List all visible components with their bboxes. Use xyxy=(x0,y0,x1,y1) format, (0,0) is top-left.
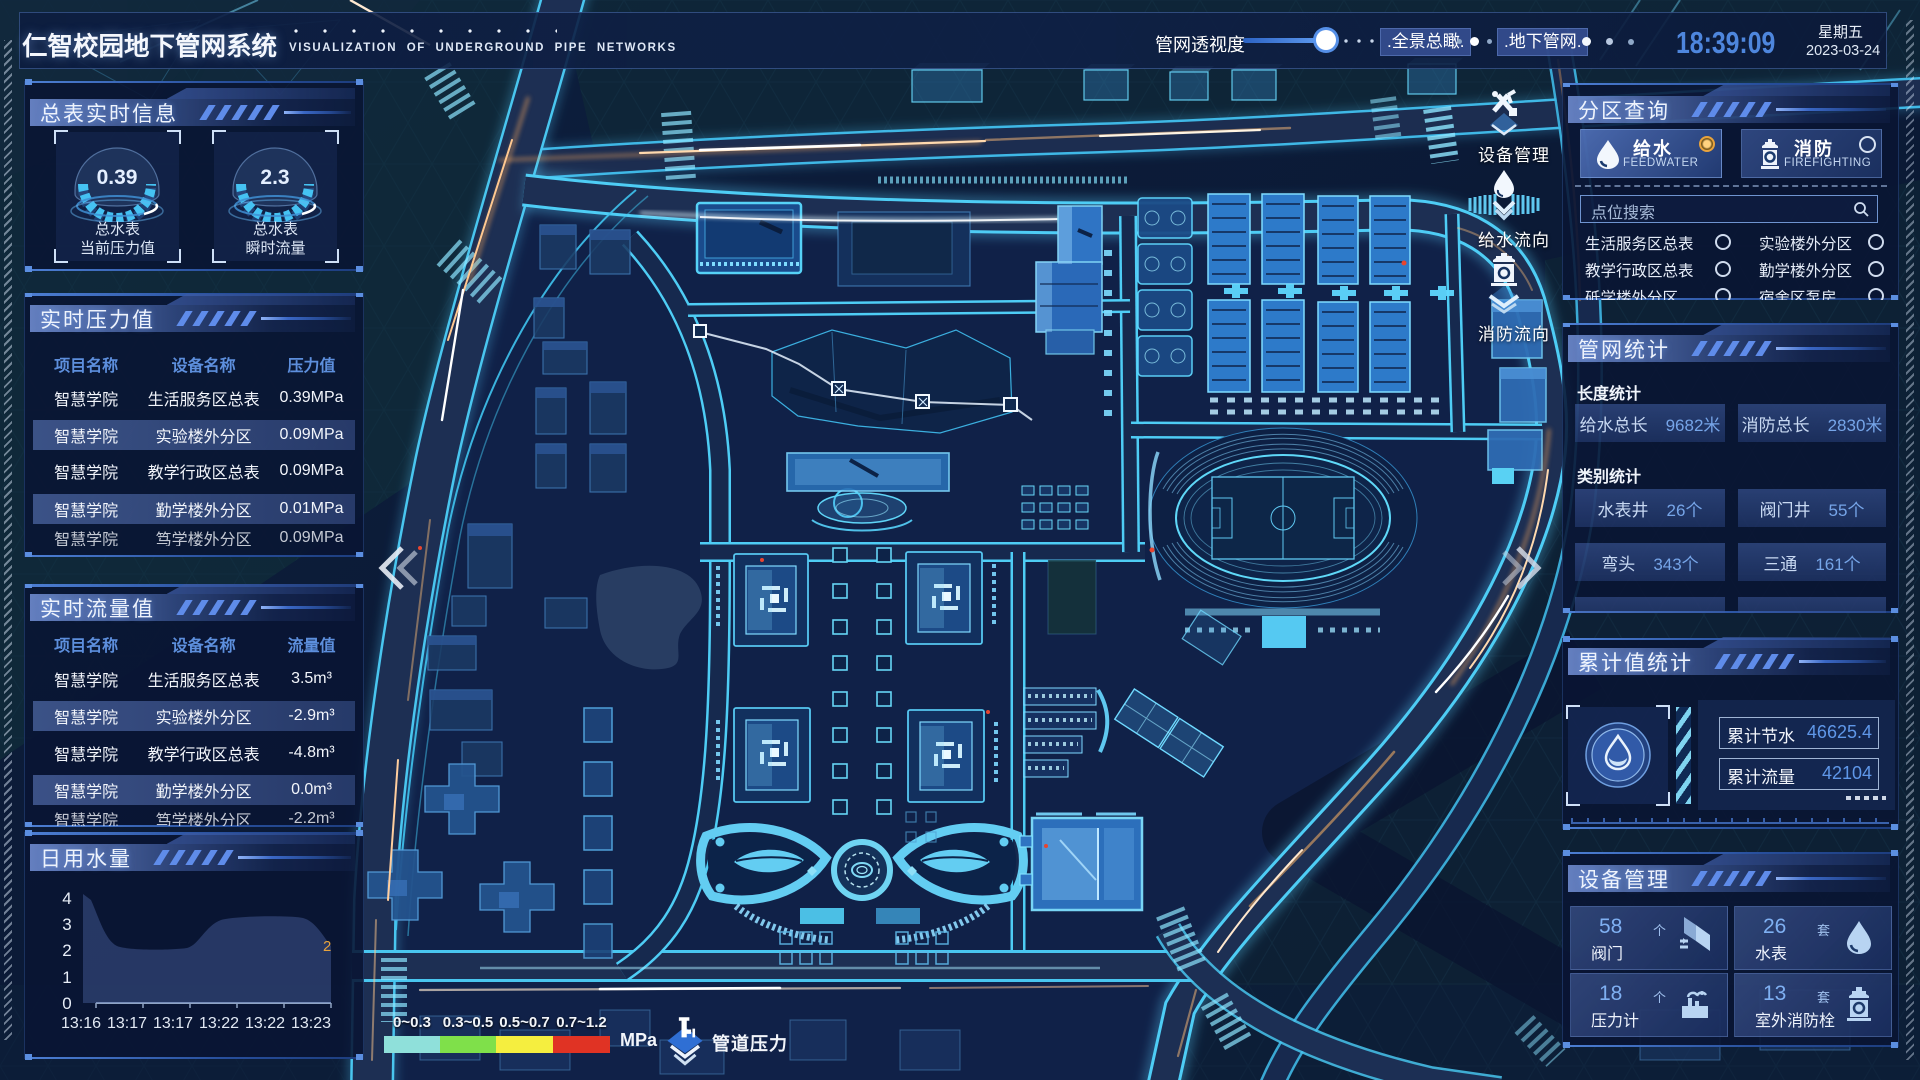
svg-text:13:17: 13:17 xyxy=(153,1015,193,1032)
svg-text:1: 1 xyxy=(62,968,71,987)
svg-text:13:23: 13:23 xyxy=(291,1015,331,1032)
svg-text:0: 0 xyxy=(62,994,71,1013)
svg-text:2: 2 xyxy=(323,938,331,955)
svg-text:3: 3 xyxy=(62,915,71,934)
svg-text:13:22: 13:22 xyxy=(199,1015,239,1032)
svg-text:4: 4 xyxy=(62,889,71,908)
svg-text:2: 2 xyxy=(62,941,71,960)
svg-text:13:17: 13:17 xyxy=(107,1015,147,1032)
svg-text:13:16: 13:16 xyxy=(61,1015,101,1032)
svg-text:13:22: 13:22 xyxy=(245,1015,285,1032)
